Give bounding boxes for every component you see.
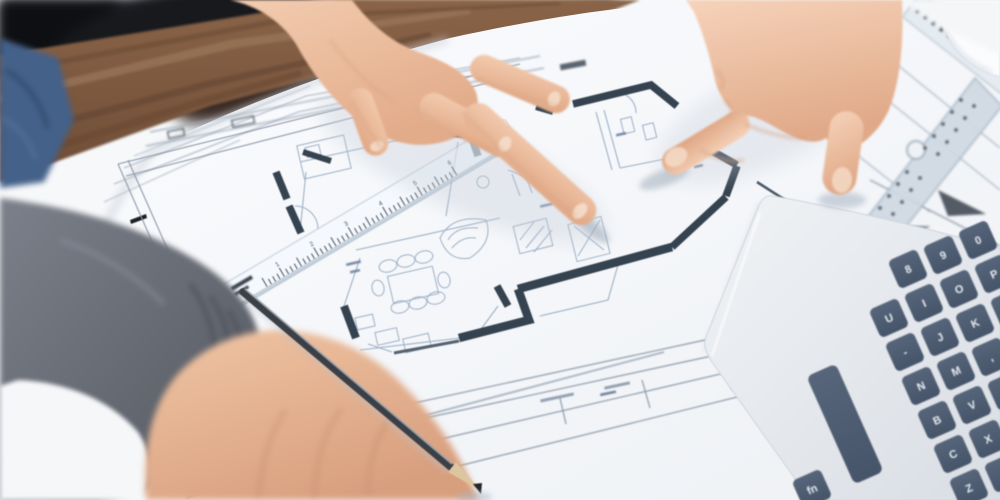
photo-scene: 1 2 3 4 5 6	[0, 0, 1000, 500]
set-square-hole	[907, 141, 925, 159]
photo-architects-blueprint: 1 2 3 4 5 6	[0, 0, 1000, 500]
